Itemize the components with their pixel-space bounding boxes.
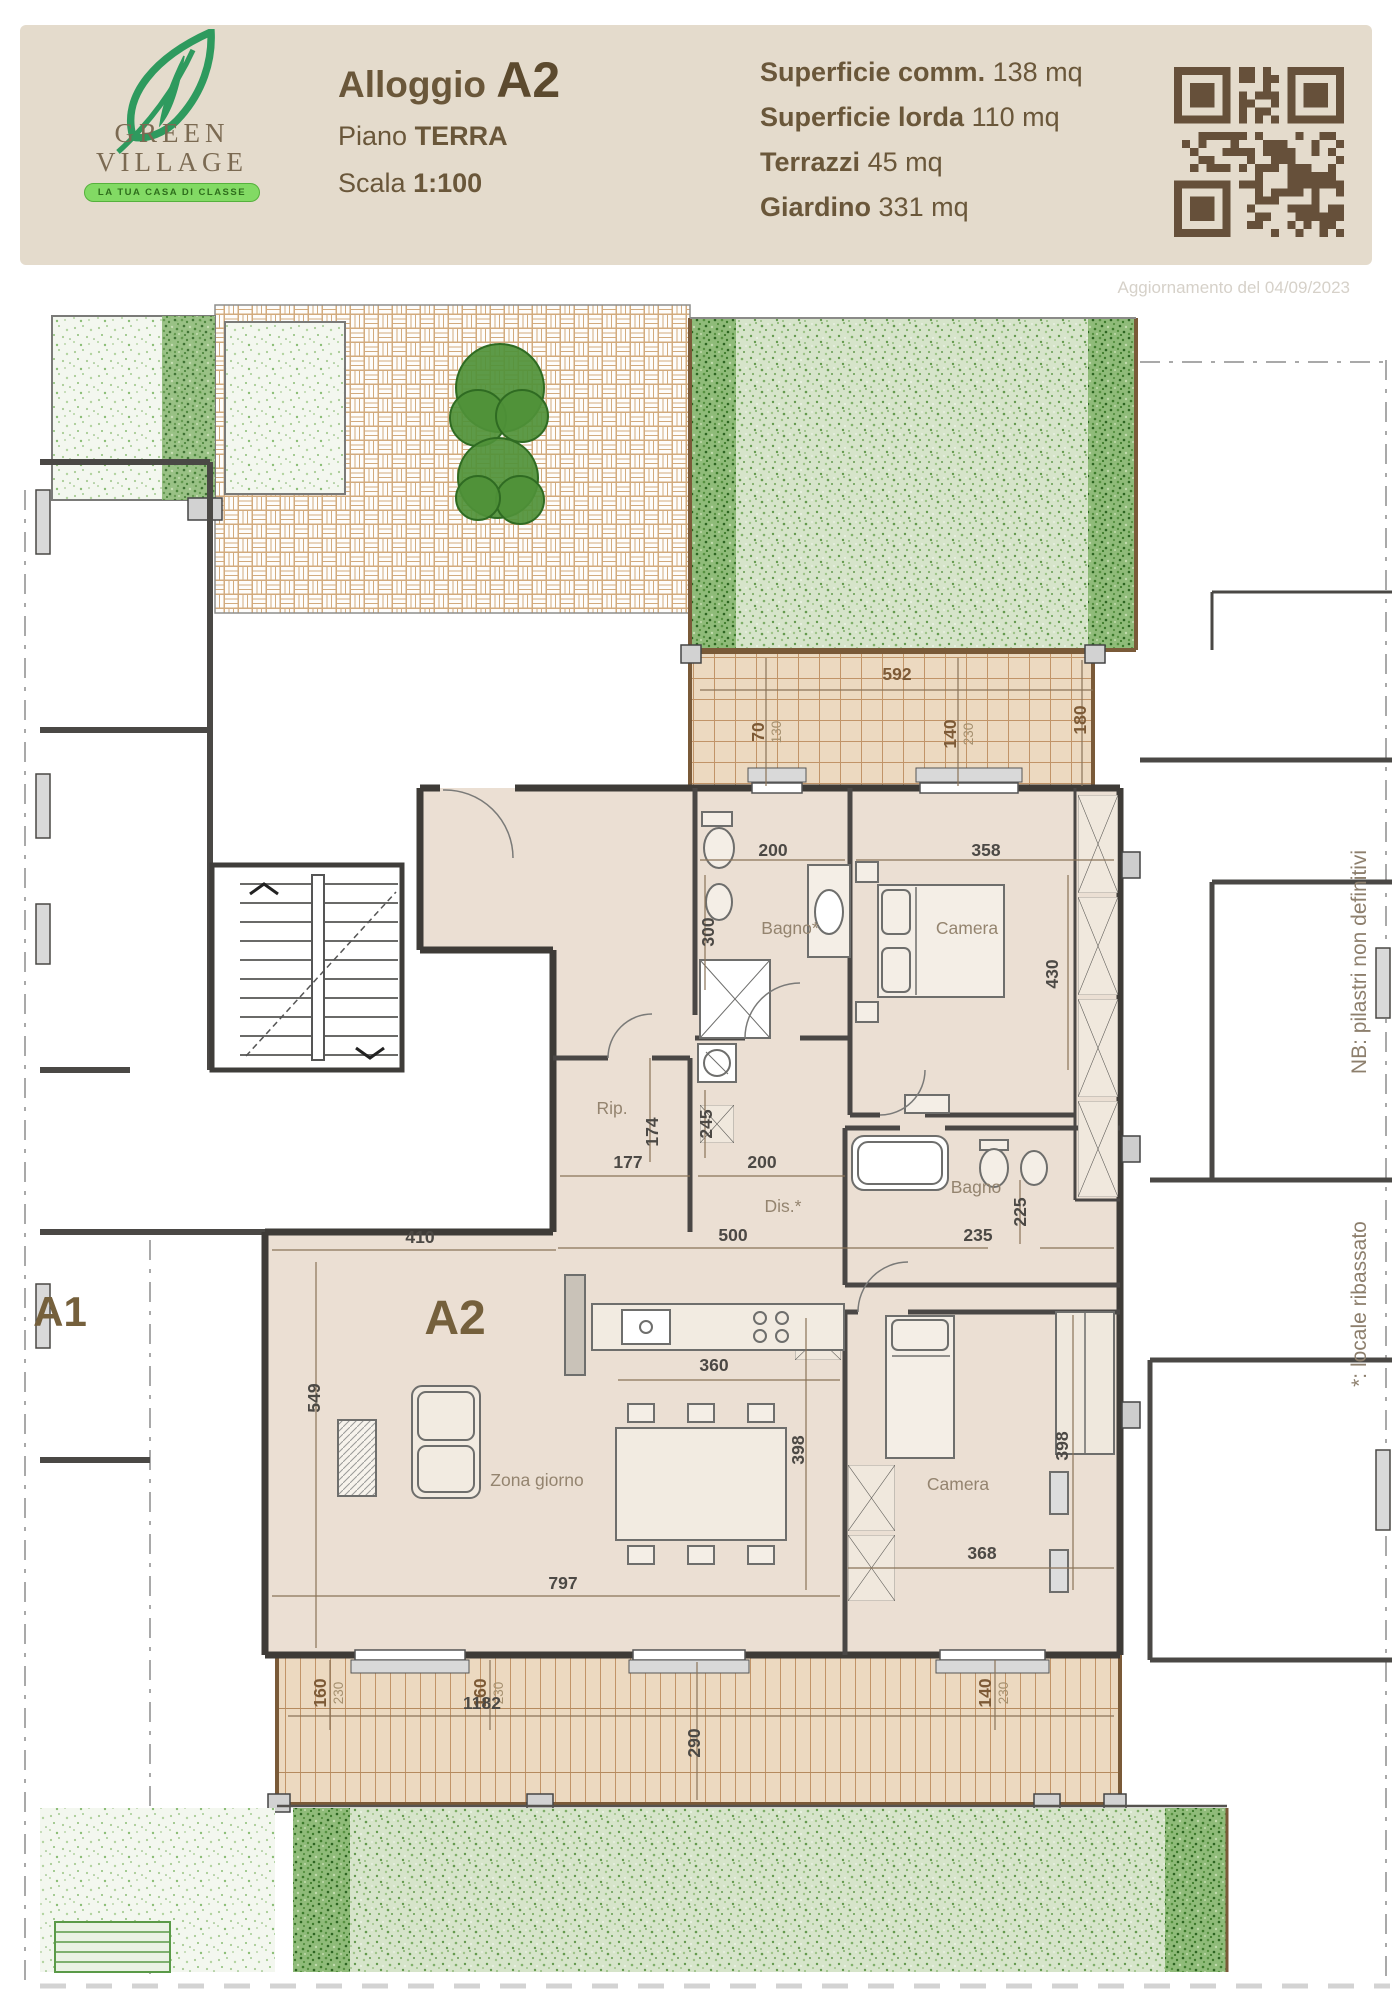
qr-code-icon [1174, 67, 1344, 237]
pillow [882, 890, 910, 934]
stat-row: Superficie comm. 138 mq [760, 57, 1083, 88]
dimension-label: 398 [788, 1435, 808, 1464]
pillar [565, 1275, 585, 1375]
dimension-secondary-label: 230 [961, 723, 976, 746]
stat-label: Superficie comm. [760, 57, 985, 87]
neighbour-right [1140, 592, 1392, 1660]
dimension-label: 430 [1042, 959, 1062, 988]
stat-value: 138 mq [993, 57, 1083, 87]
dimension-label: 358 [971, 840, 1000, 860]
stat-value: 45 mq [868, 147, 943, 177]
stat-value: 331 mq [879, 192, 969, 222]
dimension-label: 300 [698, 917, 718, 946]
dimension-label: 140 [975, 1678, 995, 1707]
floor-value: TERRA [415, 121, 508, 151]
dining-table [616, 1428, 786, 1540]
header-card: GREEN VILLAGE LA TUA CASA DI CLASSE Allo… [20, 25, 1372, 265]
pergola [55, 1922, 170, 1972]
dimension-label: 592 [882, 664, 911, 684]
hedge-planters-top-left [52, 316, 345, 520]
room-label: Rip. [596, 1098, 627, 1118]
dimension-label: 290 [684, 1728, 704, 1757]
radiator [1050, 1550, 1068, 1592]
tv-cabinet [338, 1420, 376, 1496]
room-label: Dis.* [765, 1196, 802, 1216]
toilet-tank [702, 812, 732, 826]
unit-title: Alloggio A2 [338, 51, 560, 109]
staircase [212, 865, 402, 1070]
garden-top-right [690, 318, 1136, 650]
stat-label: Superficie lorda [760, 102, 964, 132]
bidet [1021, 1151, 1047, 1185]
toilet [704, 828, 734, 868]
dimension-secondary-label: 230 [996, 1682, 1011, 1705]
scale-line: Scala 1:100 [338, 168, 560, 199]
surface-stats: Superficie comm. 138 mq Superficie lorda… [760, 57, 1083, 237]
dimension-label: 200 [747, 1152, 776, 1172]
dimension-label: 200 [758, 840, 787, 860]
stat-row: Superficie lorda 110 mq [760, 102, 1083, 133]
logo-text-village: VILLAGE [62, 148, 282, 177]
bushes [450, 344, 548, 524]
dimension-label: 245 [696, 1109, 716, 1138]
dimension-label: 797 [548, 1573, 577, 1593]
stat-row: Giardino 331 mq [760, 192, 1083, 223]
stat-label: Terrazzi [760, 147, 860, 177]
logo-text-green: GREEN [62, 119, 282, 148]
scale-value: 1:100 [413, 168, 482, 198]
scale-label: Scala [338, 168, 406, 198]
dimension-label: 160 [310, 1678, 330, 1707]
pillow [882, 948, 910, 992]
title-block: Alloggio A2 Piano TERRA Scala 1:100 [338, 51, 560, 199]
dimension-label: 180 [1070, 705, 1090, 734]
update-note: Aggiornamento del 04/09/2023 [1000, 278, 1350, 298]
room-label: Bagno* [761, 918, 819, 938]
sofa [412, 1386, 480, 1498]
floor-label: Piano [338, 121, 407, 151]
radiator [1050, 1472, 1068, 1514]
dimension-secondary-label: 230 [331, 1682, 346, 1705]
room-label: Zona giorno [490, 1470, 583, 1490]
side-note: *: locale ribassato [1348, 1221, 1371, 1387]
unit-label: A1 [33, 1288, 87, 1335]
dimension-label: 410 [405, 1227, 434, 1247]
unit-title-value: A2 [496, 52, 560, 108]
dimension-label: 500 [718, 1225, 747, 1245]
dimension-label: 368 [967, 1543, 996, 1563]
nightstand [856, 1002, 878, 1022]
floor-plan-sheet: GREEN VILLAGE LA TUA CASA DI CLASSE Allo… [0, 0, 1392, 2000]
stat-label: Giardino [760, 192, 871, 222]
dimension-label: 225 [1010, 1197, 1030, 1226]
dimension-label: 1182 [463, 1693, 501, 1713]
dimension-label: 235 [963, 1225, 992, 1245]
dimension-secondary-label: 130 [769, 721, 784, 744]
dimension-label: 398 [1052, 1431, 1072, 1460]
unit-title-label: Alloggio [338, 64, 486, 105]
floor-line: Piano TERRA [338, 121, 560, 152]
green-village-logo: GREEN VILLAGE LA TUA CASA DI CLASSE [62, 29, 282, 202]
dimension-label: 140 [940, 719, 960, 748]
logo-tagline: LA TUA CASA DI CLASSE [84, 183, 260, 202]
kitchen-sink [622, 1310, 670, 1344]
washbasin [815, 890, 843, 934]
washbasin-cabinet [905, 1095, 949, 1113]
dimension-label: 177 [613, 1152, 642, 1172]
bottom-garden [40, 1806, 1390, 1986]
room-label: Bagno [951, 1177, 1002, 1197]
dimension-label: 549 [304, 1383, 324, 1412]
bathtub [852, 1136, 948, 1190]
stat-row: Terrazzi 45 mq [760, 147, 1083, 178]
dimension-label: 70 [748, 722, 768, 742]
pillow [892, 1320, 948, 1350]
bidet [706, 884, 732, 920]
stat-value: 110 mq [972, 102, 1060, 132]
dimension-label: 360 [699, 1355, 728, 1375]
floor-plan-drawing: 5927013014023018020035830043017424517720… [0, 300, 1392, 2000]
dimension-label: 174 [642, 1117, 662, 1146]
side-note: NB: pilastri non definitivi [1348, 850, 1371, 1074]
room-label: Camera [936, 918, 999, 938]
unit-label: A2 [424, 1292, 485, 1345]
room-label: Camera [927, 1474, 990, 1494]
nightstand [856, 862, 878, 882]
